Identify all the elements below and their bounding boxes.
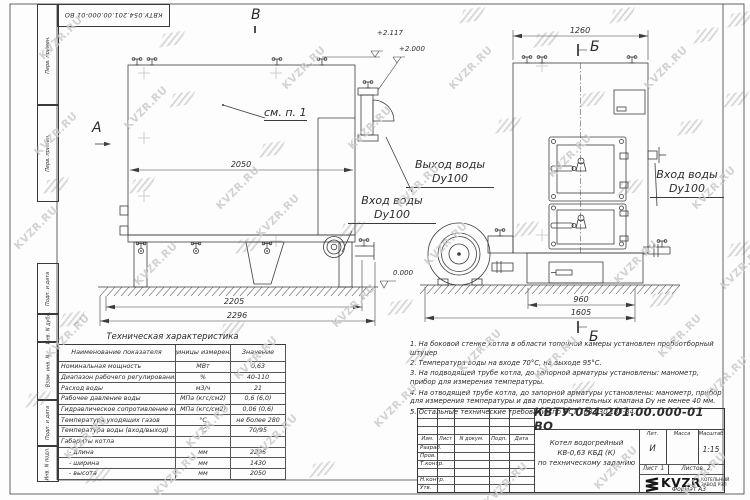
kvzr-logo-sub2: ЗАВОД РЭП [701,483,729,488]
lit-value: И [639,440,666,458]
signature-row-label: Т.контр. [420,460,444,468]
frame-side-cell-label: Инв. N подл. [45,447,51,480]
tech-table-row: Диапазон рабочего регулирования%40-110 [58,373,286,384]
tech-table-cell: 2050 [231,469,286,480]
tech-table-cell: 2296 [231,448,286,459]
frame-side-cell: Подп. и дата [37,263,59,315]
tech-table-cell: °С [176,426,231,437]
tech-table-cell: 0,6 (6,0) [231,394,286,405]
note-item: 3. На подводящей трубе котла, до запорно… [410,369,724,387]
tech-table-row: Номинальная мощностьМВт0,63 [58,362,286,373]
rev-header-cell: N докум. [454,434,489,444]
boiler-side-view [120,58,412,287]
tech-table-cell: 70/95 [231,426,286,437]
tech-table-cell: - высота [58,469,176,480]
frame-side-cell-label: Взам. инв. N [45,355,51,388]
frame-side-cell-label: Перв. примен. [45,134,51,172]
tech-table-row: Рабочее давление водыМПа (кгс/см2)0,6 (6… [58,394,286,405]
tech-table-cell: мм [176,448,231,459]
tech-table-cell: % [176,373,231,384]
elevation-2117: +2.117 [377,29,403,37]
tech-table-cell: 0,63 [231,362,286,373]
tech-table-row: Температура воды (вход/выход)°С70/95 [58,426,286,437]
outlet-water-line2: Dy100 [406,172,494,186]
frame-side-cell-label: Подп. и дата [45,272,51,306]
rev-header-cell: Лист [437,434,454,444]
view-label-b-top: Б [590,39,600,55]
ground [98,285,680,296]
tech-table: Наименование показателяЕдиницы измерения… [57,344,286,480]
sheets-value: 2 [707,466,711,472]
outlet-water-line1: Выход воды [406,158,494,172]
tech-table-cell: мм [176,458,231,469]
tech-table-row: - ширинамм1430 [58,458,286,469]
lower-door [549,204,628,249]
outlet-pipe [358,81,394,141]
print-cross-marks [138,60,548,247]
tech-table-cell: Рабочее давление воды [58,394,176,405]
tech-table-header-cell: Значение [231,345,286,362]
elevation-0000: 0.000 [393,269,413,277]
frame-side-cell: Инв. N подл. [37,445,59,482]
scale-value: 1:15 [698,442,724,457]
frame-side-cell-label: Перв. примен. [45,36,51,74]
tech-table-row: Гидравлическое сопротивление котлаМПа (к… [58,405,286,416]
dim-960: 960 [573,295,588,304]
dim-2205: 2205 [224,297,244,306]
frame-side-cell-label: Подп. и дата [45,406,51,440]
tech-table-cell: не более 280 [231,415,286,426]
tech-table-row: Температура уходящих газов°Сне более 280 [58,415,286,426]
tb-divider [639,429,640,492]
inlet-right-line2: Dy100 [650,182,724,196]
tech-table-cell: 21 [231,383,286,394]
tech-table-cell: Температура уходящих газов [58,415,176,426]
tech-table-cell: Температура воды (вход/выход) [58,426,176,437]
tech-table-cell: Гидравлическое сопротивление котла [58,405,176,416]
inlet-right-line1: Вход воды [650,168,724,182]
inlet-stub [648,147,666,163]
note-item: 2. Температура воды на входе 70°С, на вы… [410,359,724,368]
rev-header-cell: Подп. [489,434,509,444]
elevation-marks [322,51,405,288]
tech-table-cell: - длина [58,448,176,459]
view-label-a: А [92,120,102,136]
signature-row-label: Н.контр. [420,476,445,484]
blower-fan [428,223,513,285]
kvzr-logo-text: KVZR [661,475,701,490]
frame-side-cell: Инв. N дубл. [37,313,59,343]
tech-table-header-cell: Единицы измерения [176,345,231,362]
tb-grid-line [454,409,455,492]
tech-table-cell: Габариты котла [58,437,176,448]
tech-table-cell: м3/ч [176,383,231,394]
product-name-line2: КВ-0,63 КБД (К) [534,448,639,458]
see-note-callout: см. п. 1 [264,106,307,121]
tb-grid-line [418,426,534,427]
dim-1605: 1605 [571,308,591,317]
scale-header: Масштаб [698,429,724,438]
note-item: 4. На отводящей трубе котла, до запорной… [410,389,724,407]
rev-header-cell: Дата [509,434,534,444]
tech-table-cell: °С [176,415,231,426]
tech-table-row: Расход водым3/ч21 [58,383,286,394]
inlet-water-label-right: Вход воды Dy100 [650,168,724,198]
signature-row-label: Утв. [420,484,432,492]
signature-row-label: Разраб. [420,444,442,452]
dim-2296: 2296 [227,311,247,320]
tech-table-cell: - ширина [58,458,176,469]
elevation-2000: +2.000 [399,45,425,53]
frame-side-cell: Перв. примен. [37,4,59,106]
inlet-left-line2: Dy100 [348,208,436,222]
tech-table-header-row: Наименование показателяЕдиницы измерения… [58,345,286,362]
inlet-left-line1: Вход воды [348,194,436,208]
drawing-sheet: КВТУ.054.201.00.000-01 ВО В А Б Б см. п.… [0,0,750,500]
tech-table-cell: 0,06 (0,6) [231,405,286,416]
product-name-line3: по техническому заданию [534,458,639,468]
note-item: 1. На боковой стенке котла в области топ… [410,340,724,358]
signature-row-label: Пров. [420,452,436,460]
dim-1260: 1260 [570,26,590,35]
frame-side-cell: Перв. примен. [37,104,59,202]
dimensions [100,30,648,326]
tb-grid-line [509,409,510,492]
tech-table-cell: 1430 [231,458,286,469]
title-block-doc-number: КВТУ.054.201.00.000-01 ВО [534,409,724,430]
title-block-name: Котел водогрейный КВ-0,63 КБД (К) по тех… [534,429,639,492]
tech-table-cell: 40-110 [231,373,286,384]
tech-table-cell: Диапазон рабочего регулирования [58,373,176,384]
tech-table-cell: МПа (кгс/см2) [176,405,231,416]
frame-side-cell: Взам. инв. N [37,341,59,401]
rev-header-cell: Изм. [418,434,437,444]
kvzr-logo-subtext: КОТЕЛЬНЫЙ ЗАВОД РЭП [701,478,729,489]
tech-table-title: Техническая характеристика [57,332,288,342]
kvzr-logo-icon [644,477,660,492]
mass-header: Масса [666,429,698,438]
sheet-label: Лист [643,466,658,472]
inlet-flange [324,237,345,258]
tech-table-cell: Номинальная мощность [58,362,176,373]
product-name-line1: Котел водогрейный [534,438,639,448]
tech-table-cell: Расход воды [58,383,176,394]
sheets-cell: Листов 2 [668,464,724,474]
tb-grid-line [418,484,534,485]
tb-grid-line [418,468,534,469]
tb-grid-line [418,418,534,419]
title-block: КВТУ.054.201.00.000-01 ВО Котел водогрей… [417,408,725,493]
tech-table-cell [231,437,286,448]
upper-door [549,137,628,201]
inlet-water-label-left: Вход воды Dy100 [348,194,436,224]
sheet-cell: Лист 1 [639,464,668,474]
tech-table-row: Габариты котла [58,437,286,448]
tech-table-cell: мм [176,469,231,480]
sheets-label: Листов [681,466,703,472]
tb-grid-line [489,409,490,492]
tech-table-row: - длинамм2296 [58,448,286,459]
sheet-value: 1 [661,466,665,472]
tech-table-cell: МПа (кгс/см2) [176,394,231,405]
view-label-v: В [251,7,261,23]
tech-table-cell [176,437,231,448]
frame-side-cell: Подп. и дата [37,399,59,447]
tech-table-header-cell: Наименование показателя [58,345,176,362]
dim-2050: 2050 [231,160,251,169]
tech-table-row: - высотамм2050 [58,469,286,480]
outlet-water-label: Выход воды Dy100 [406,158,494,188]
tech-table-cell: МВт [176,362,231,373]
top-left-doc-stamp: КВТУ.054.201.00.000-01 ВО [57,4,170,27]
lit-header: Лит. [639,429,666,438]
top-left-doc-number: КВТУ.054.201.00.000-01 ВО [64,12,162,20]
frame-side-cell-label: Инв. N дубл. [45,312,51,345]
